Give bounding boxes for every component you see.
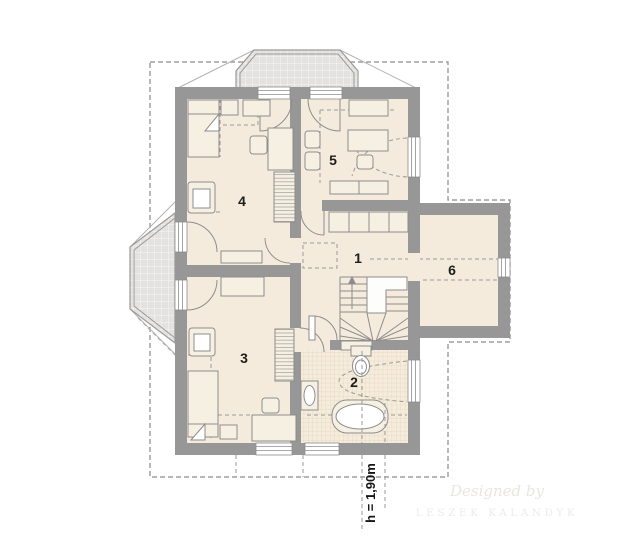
low-cabinet <box>221 277 264 296</box>
wall-room5-hall <box>322 200 408 211</box>
armchair-seat <box>194 334 210 351</box>
window-right-room5 <box>408 137 420 177</box>
window-right-bathroom <box>408 360 420 402</box>
stool <box>357 155 373 169</box>
wall-cabinet <box>349 100 388 116</box>
room-label-2: 2 <box>350 374 358 390</box>
window-room6 <box>498 258 510 277</box>
watermark-name-line: LESZEK KALANDYK <box>416 507 578 519</box>
bay-door-room3 <box>175 280 187 310</box>
desk <box>268 128 293 170</box>
watermark-script-line: Designed by <box>449 482 545 500</box>
toilet-tank <box>351 346 371 356</box>
room-label-4: 4 <box>238 193 246 209</box>
balcony-top <box>236 50 358 88</box>
wall-ext-top <box>408 203 510 215</box>
room-label-5: 5 <box>329 152 337 168</box>
wall-bottom <box>175 443 420 455</box>
watermark: Designed by LESZEK KALANDYK <box>416 482 578 519</box>
nightstand <box>220 425 237 439</box>
wall-ext-bottom <box>408 326 510 338</box>
window-bottom-bathroom <box>305 443 339 455</box>
room-label-1: 1 <box>354 250 362 266</box>
low-cabinet <box>221 251 262 263</box>
sink-basin <box>304 386 315 406</box>
room-6-floor <box>420 215 498 326</box>
bay-door-room4 <box>175 222 187 252</box>
wall-cabinet <box>243 100 270 116</box>
window-bottom-room3 <box>256 443 292 455</box>
balcony-door-room5 <box>310 87 342 99</box>
doorway-room4 <box>290 238 301 263</box>
nightstand <box>221 100 238 115</box>
hall-cabinet <box>329 212 408 232</box>
table <box>348 130 388 151</box>
armchair-seat <box>193 189 210 208</box>
balcony-left-bay <box>130 213 175 343</box>
stool <box>305 131 320 148</box>
balcony-door-room4 <box>258 87 290 99</box>
passage-room6 <box>408 253 420 281</box>
knee-wall-height-label: h = 1,90m <box>363 463 378 523</box>
wall-room3-room4-divider <box>187 265 290 277</box>
room-label-3: 3 <box>240 350 248 366</box>
floor-plan-drawing: h = 1,90m 1 2 3 4 5 6 Designed by LESZEK… <box>0 0 638 556</box>
bathtub-basin <box>336 404 384 429</box>
wall-top <box>175 87 420 99</box>
chair <box>250 136 267 154</box>
door-leaf-bathroom <box>309 316 315 340</box>
floor-plan-page: h = 1,90m 1 2 3 4 5 6 Designed by LESZEK… <box>0 0 638 556</box>
room-label-6: 6 <box>448 262 456 278</box>
wall-left <box>175 87 187 455</box>
desk <box>252 415 296 441</box>
chair <box>262 398 279 413</box>
stool <box>305 152 320 170</box>
